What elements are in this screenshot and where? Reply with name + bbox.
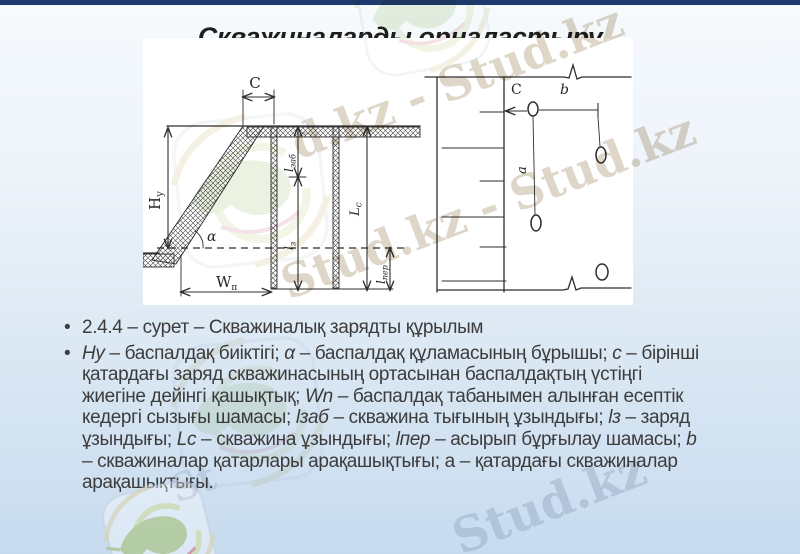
plan-crest-distance-label: C [511, 82, 522, 98]
plan-view: C b a [425, 65, 631, 292]
bullet-item: •Ну – баспалдақ биіктігі; α – баспалдақ … [62, 343, 710, 494]
overdrill-label: lпер [374, 265, 390, 284]
bench-height-label: Hу [146, 191, 166, 210]
crest-distance-label: C [249, 74, 260, 92]
borehole-mark [596, 264, 608, 280]
charge-length-label: lз [282, 242, 298, 250]
borehole-column [271, 126, 277, 288]
bullet-marker: • [64, 343, 70, 365]
row-spacing-label: b [560, 82, 569, 98]
stemming-length-label: lзаб [282, 154, 298, 172]
slope-angle-label: α [207, 229, 217, 245]
cross-section-view: Hу α C lзаб lз Lс [143, 74, 420, 296]
bullet-item: •2.4.4 – сурет – Скважиналық зарядты құр… [62, 317, 710, 339]
floor-hatch [143, 254, 174, 267]
burden-label: Wп [216, 273, 237, 293]
borehole-diagram: Hу α C lзаб lз Lс [143, 38, 633, 305]
hole-length-label: Lс [348, 202, 365, 217]
borehole-mark [531, 215, 541, 231]
bullet-marker: • [64, 317, 70, 339]
top-accent-bar [0, 0, 800, 5]
borehole-column [333, 126, 339, 288]
body-text: •2.4.4 – сурет – Скважиналық зарядты құр… [62, 317, 710, 498]
bullet-list: •2.4.4 – сурет – Скважиналық зарядты құр… [62, 317, 710, 494]
borehole-mark [528, 102, 538, 116]
borehole-mark [596, 147, 606, 163]
slide: Скважиналарды орналастыру [0, 0, 800, 554]
hole-spacing-label: a [515, 166, 530, 174]
figure-box: Hу α C lзаб lз Lс [143, 38, 633, 305]
